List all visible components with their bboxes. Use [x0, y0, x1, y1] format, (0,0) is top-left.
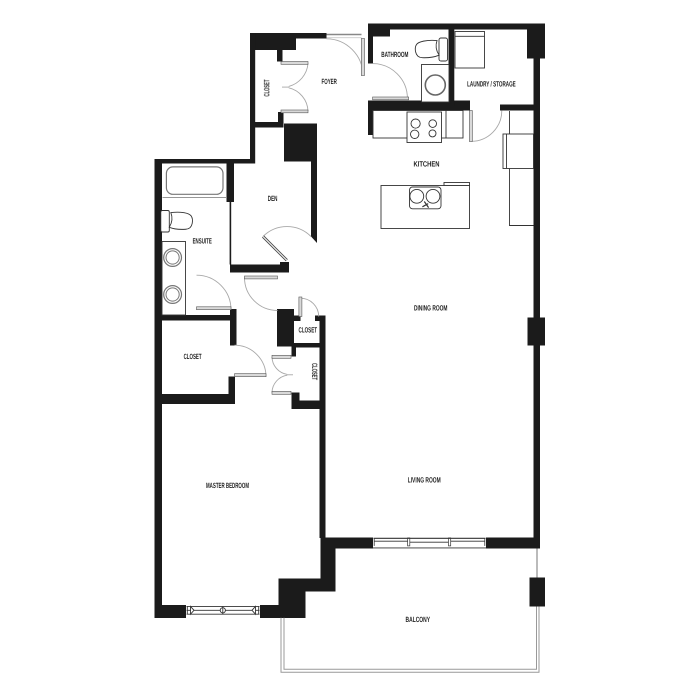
- svg-text:CLOSET: CLOSET: [310, 363, 319, 380]
- svg-text:LIVING ROOM: LIVING ROOM: [408, 475, 441, 484]
- svg-text:ENSUITE: ENSUITE: [193, 236, 212, 245]
- svg-text:CLOSET: CLOSET: [299, 326, 318, 335]
- svg-text:KITCHEN: KITCHEN: [414, 159, 440, 168]
- svg-text:LAUNDRY / STORAGE: LAUNDRY / STORAGE: [467, 79, 516, 88]
- svg-text:BATHROOM: BATHROOM: [381, 50, 408, 59]
- svg-text:CLOSET: CLOSET: [184, 352, 202, 361]
- svg-text:CLOSET: CLOSET: [263, 79, 272, 96]
- svg-text:BALCONY: BALCONY: [406, 615, 431, 624]
- svg-text:DINING ROOM: DINING ROOM: [414, 303, 448, 312]
- svg-text:FOYER: FOYER: [322, 77, 338, 86]
- svg-text:DEN: DEN: [268, 194, 278, 203]
- svg-text:MASTER BEDROOM: MASTER BEDROOM: [206, 481, 249, 490]
